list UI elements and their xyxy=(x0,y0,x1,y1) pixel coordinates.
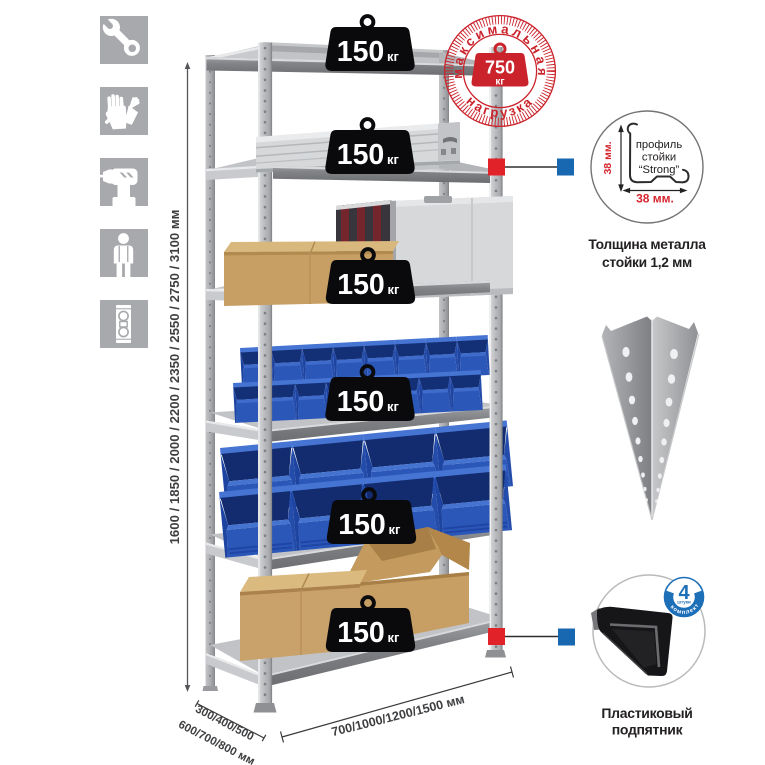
svg-text:38 мм.: 38 мм. xyxy=(602,141,614,174)
svg-text:профиль: профиль xyxy=(636,139,682,151)
svg-text:Толщина металла: Толщина металла xyxy=(588,237,706,252)
svg-text:подпятник: подпятник xyxy=(612,722,684,738)
svg-text:38 мм.: 38 мм. xyxy=(636,192,674,206)
svg-text:штуки: штуки xyxy=(677,600,691,605)
svg-text:Пластиковый: Пластиковый xyxy=(601,705,692,721)
svg-text:750: 750 xyxy=(485,58,515,78)
svg-text:стойки 1,2 мм: стойки 1,2 мм xyxy=(602,255,692,270)
svg-text:“Strong”: “Strong” xyxy=(639,164,680,176)
svg-text:1600 / 1850 / 2000 / 2200 / 23: 1600 / 1850 / 2000 / 2200 / 2350 / 2550 … xyxy=(167,210,182,545)
svg-text:стойки: стойки xyxy=(642,152,676,164)
svg-text:кг: кг xyxy=(495,77,504,88)
